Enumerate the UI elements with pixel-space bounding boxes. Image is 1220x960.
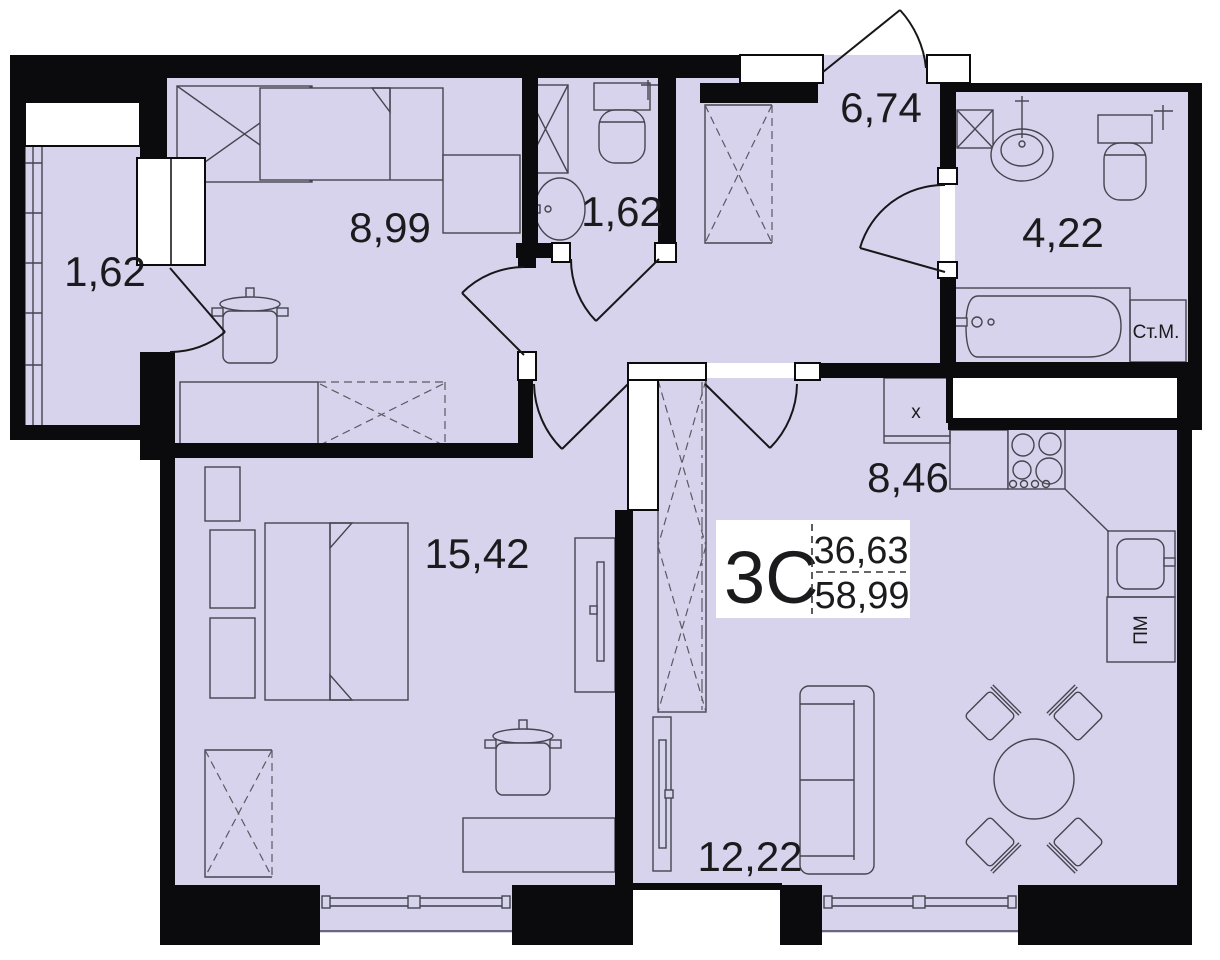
nightstand-icon xyxy=(210,618,255,698)
floor-sill-bedroom xyxy=(320,885,512,933)
unit-type-label: 3С xyxy=(724,536,819,619)
label-wc: 1,62 xyxy=(581,188,663,235)
floor-plan-page: 3С 36,63 58,99 1,62 8,99 1,62 6,74 4,22 … xyxy=(0,0,1220,960)
label-bathroom: 4,22 xyxy=(1022,209,1104,256)
desk-icon xyxy=(463,818,615,872)
area-stamp: 3С 36,63 58,99 xyxy=(716,520,910,619)
living-area-value: 36,63 xyxy=(813,530,908,572)
shelf-icon xyxy=(205,467,240,521)
label-loggia: 1,62 xyxy=(64,248,146,295)
cabinet-icon xyxy=(443,155,520,233)
bathtub-icon xyxy=(953,288,1130,365)
floor-sill-living xyxy=(822,885,1018,933)
sofa-icon xyxy=(800,686,874,874)
single-bed-icon xyxy=(260,88,443,180)
nightstand-icon xyxy=(210,530,255,608)
total-area-value: 58,99 xyxy=(814,575,909,617)
floor-entrance xyxy=(820,55,928,85)
label-living-room: 12,22 xyxy=(697,833,802,880)
label-hallway: 6,74 xyxy=(840,84,922,131)
shaft-pocket xyxy=(953,378,1177,418)
floor-plan-canvas: 3С 36,63 58,99 1,62 8,99 1,62 6,74 4,22 … xyxy=(0,0,1220,960)
label-kitchen: 8,46 xyxy=(867,454,949,501)
stove-icon xyxy=(1008,428,1065,489)
fridge-label: х xyxy=(911,402,921,423)
label-bedroom-main: 15,42 xyxy=(424,530,529,577)
washing-machine-label: Ст.М. xyxy=(1133,322,1180,343)
label-bedroom-secondary: 8,99 xyxy=(349,204,431,251)
dishwasher-label: ПМ xyxy=(1131,615,1152,644)
double-bed-icon xyxy=(265,523,408,700)
dining-table-icon xyxy=(994,739,1074,819)
